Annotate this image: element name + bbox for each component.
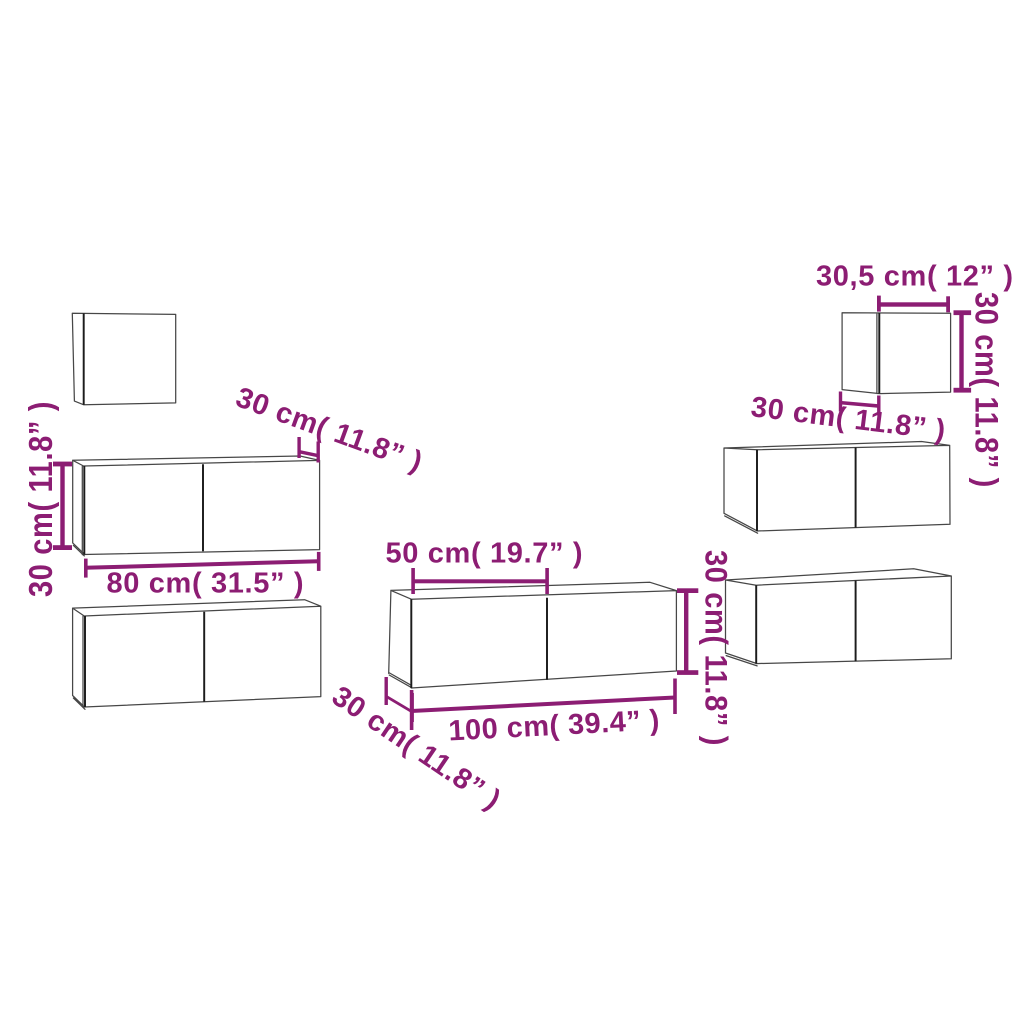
svg-text:30 cm( 11.8” ): 30 cm( 11.8” ) <box>698 550 734 746</box>
svg-text:50 cm( 19.7” ): 50 cm( 19.7” ) <box>386 538 584 570</box>
svg-text:80 cm( 31.5” ): 80 cm( 31.5” ) <box>107 568 305 600</box>
svg-text:30,5 cm( 12” ): 30,5 cm( 12” ) <box>816 261 1014 293</box>
svg-text:30 cm( 11.8” ): 30 cm( 11.8” ) <box>22 401 59 597</box>
svg-text:30 cm( 11.8” ): 30 cm( 11.8” ) <box>968 292 1005 488</box>
